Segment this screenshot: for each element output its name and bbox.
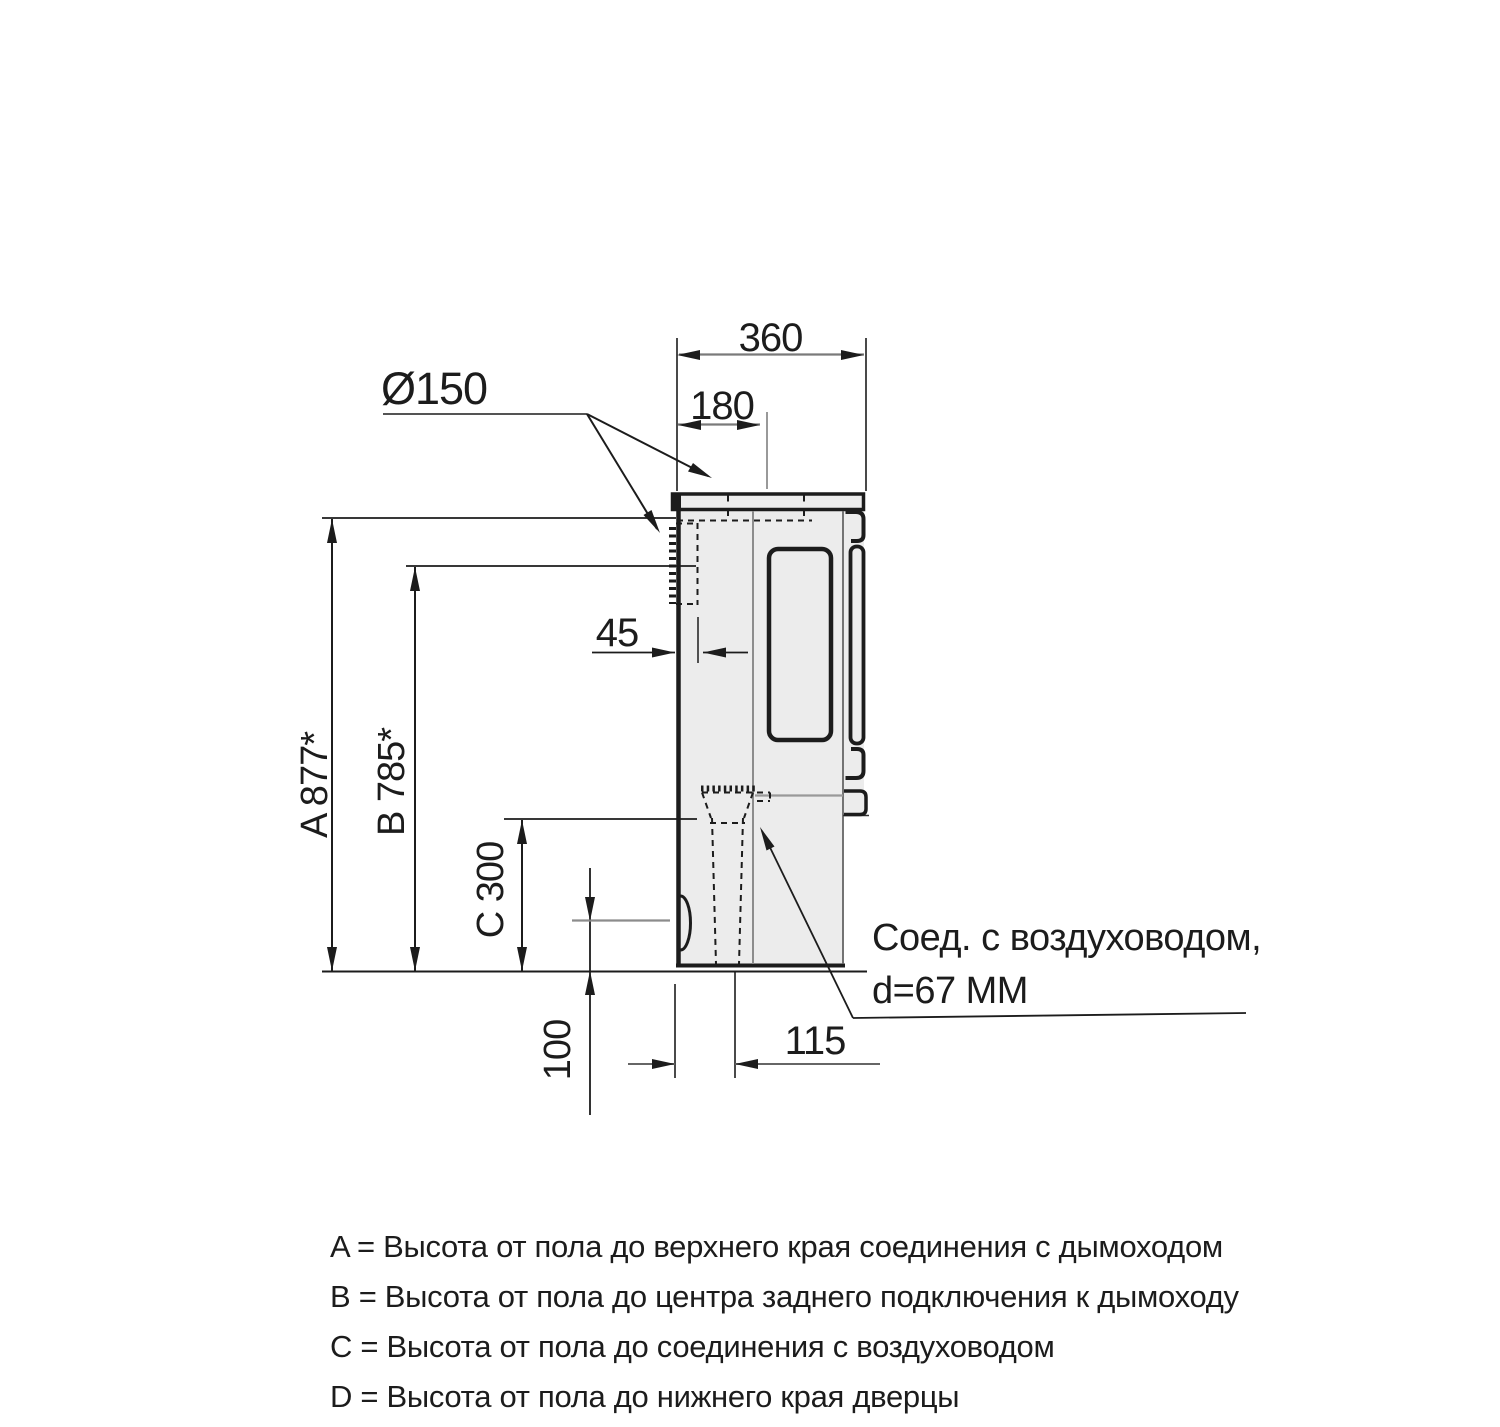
top-plate-left-cap	[672, 494, 681, 511]
stove-diagram-svg	[0, 0, 1500, 1427]
legend: A = Высота от пола до верхнего края соед…	[330, 1222, 1430, 1422]
dim-label-360: 360	[677, 316, 864, 361]
arrow-flue-top	[688, 463, 712, 478]
air-duct-note-line1: Соед. с воздуховодом,	[872, 917, 1261, 960]
stove-dimension-drawing: 360 180 Ø150 45 A 877* B 785* C 300 100 …	[0, 0, 1500, 1427]
top-plate	[673, 494, 864, 510]
side-glass	[769, 549, 831, 740]
dim-label-180: 180	[677, 384, 767, 429]
dim-label-115: 115	[735, 1019, 895, 1064]
dim-label-diameter-150: Ø150	[381, 363, 487, 415]
legend-item-b: B = Высота от пола до центра заднего под…	[330, 1272, 1430, 1322]
door-front-edge	[851, 547, 864, 744]
leader-duct-underline	[853, 1013, 1246, 1018]
dim-label-45: 45	[577, 611, 657, 656]
legend-item-d: D = Высота от пола до нижнего края дверц…	[330, 1372, 1430, 1422]
front-foot-bracket	[844, 791, 866, 815]
dim-label-height-c: C 300	[469, 780, 513, 1000]
arrow-flue-rear	[644, 510, 661, 533]
legend-item-a: A = Высота от пола до верхнего края соед…	[330, 1222, 1430, 1272]
legend-item-c: C = Высота от пола до соединения с возду…	[330, 1322, 1430, 1372]
dim-label-height-b: B 785*	[370, 672, 414, 892]
dim-label-100: 100	[536, 940, 580, 1160]
dim-label-height-a: A 877*	[293, 675, 337, 895]
air-duct-note-line2: d=67 ММ	[872, 970, 1028, 1013]
